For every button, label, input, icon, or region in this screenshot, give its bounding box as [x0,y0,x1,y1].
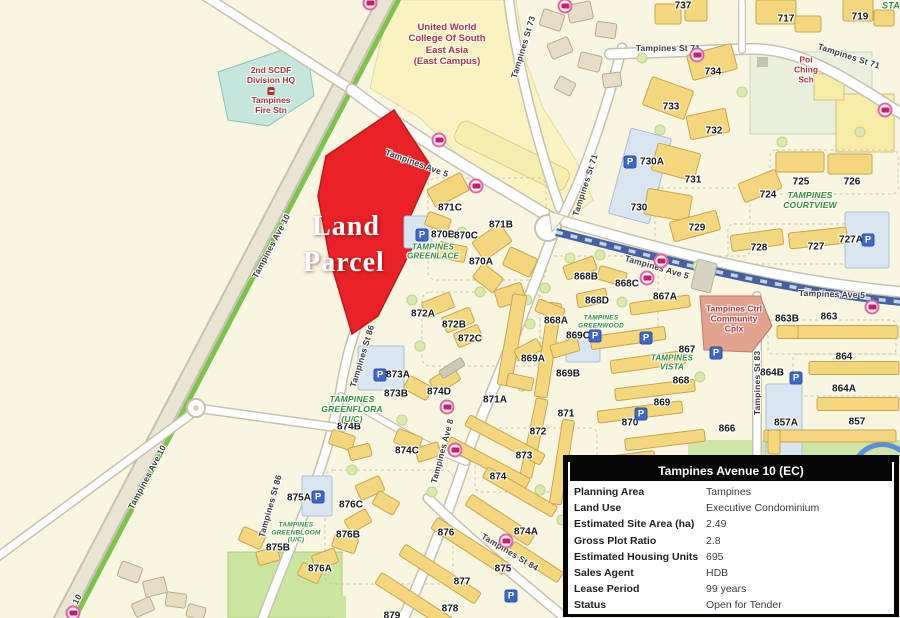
street-label-tampines-ave-5: Tampines Ave 5 [384,147,450,179]
estate-label-sta: STA [882,1,900,12]
bus-stop-icon [654,254,669,269]
block-label-868d: 868D [585,296,609,307]
block-label-730: 730 [631,203,648,214]
block-label-725: 725 [793,177,810,188]
landmark-label-tampines-ctrl: Tampines CtrlCommunityCplx [706,304,762,335]
block-label-866: 866 [719,424,736,435]
parking-icon: P [790,372,803,385]
info-table-rows: Planning AreaTampinesLand UseExecutive C… [568,481,894,614]
landmark-label-united-world: United WorldCollege Of SouthEast Asia(Ea… [408,22,485,68]
table-row: Estimated Housing Units695 [574,549,894,565]
block-label-871: 871 [558,409,575,420]
table-row: Lease Period99 years [574,581,894,597]
bus-stop-icon [499,534,514,549]
table-value: 2.49 [706,518,726,530]
block-label-724: 724 [760,190,777,201]
table-label: Land Use [574,502,706,514]
block-label-870a: 870A [469,257,493,268]
land-parcel-label-line1: Land [312,211,380,243]
block-label-868c: 868C [615,279,639,290]
block-label-857a: 857A [774,418,798,429]
block-label-876b: 876B [336,530,360,541]
estate-label-tampines-courtview: TAMPINESCOURTVIEW [783,190,837,210]
table-row: Gross Plot Ratio2.8 [574,533,894,549]
block-label-870b: 870B [431,230,455,241]
landmark-label-2nd-scdf: 2nd SCDFDivision HQ [247,65,295,85]
block-label-732: 732 [706,126,723,137]
table-value: Open for Tender [706,599,782,611]
fire-station-icon [268,87,275,95]
estate-label-tampines-greenbloom-u-c-: TAMPINESGREENBLOOM(U/C) [271,522,320,545]
block-label-877: 877 [454,577,471,588]
block-label-872c: 872C [458,334,482,345]
table-label: Estimated Housing Units [574,551,706,563]
block-label-869a: 869A [521,354,545,365]
block-label-869b: 869B [556,369,580,380]
street-label-tampines-st-71: Tampines St 71 [570,153,599,217]
block-label-875a: 875A [287,493,311,504]
street-label-tampines-st-71: Tampines St 71 [817,41,881,70]
bus-stop-icon [865,300,880,315]
block-label-878: 878 [442,604,459,615]
block-label-864a: 864A [832,384,856,395]
block-label-871a: 871A [483,395,507,406]
block-label-728: 728 [751,243,768,254]
parking-icon: P [589,330,602,343]
table-row: Sales AgentHDB [574,565,894,581]
table-row: Planning AreaTampines [574,484,894,500]
parking-icon: P [640,332,653,345]
block-label-874: 874 [490,472,507,483]
block-label-869c: 869C [566,331,590,342]
parking-icon: P [635,408,648,421]
bus-stop-icon [363,0,378,11]
block-label-874d: 874D [427,387,451,398]
table-label: Planning Area [574,486,706,498]
block-label-863b: 863B [775,314,799,325]
block-label-731: 731 [685,175,702,186]
estate-label-tampines-greenflora-u-c-: TAMPINESGREENFLORA(U/C) [321,394,383,424]
block-label-864: 864 [836,352,853,363]
block-label-868: 868 [673,376,690,387]
parking-icon: P [416,229,429,242]
block-label-727a: 727A [839,235,863,246]
block-label-868a: 868A [544,316,568,327]
bus-stop-icon [878,103,893,118]
street-label-tampines-st-83: Tampines St 83 [752,351,762,416]
landmark-label-poi: PoiChingSch [794,55,818,86]
table-row: Estimated Site Area (ha)2.49 [574,516,894,532]
block-label-727: 727 [808,242,825,253]
block-label-876a: 876A [308,564,332,575]
land-parcel-info-table: Tampines Avenue 10 (EC) Planning AreaTam… [564,456,898,616]
table-label: Gross Plot Ratio [574,535,706,547]
street-label-tampines-st-73: Tampines St 73 [509,15,537,80]
block-label-868b: 868B [574,272,598,283]
block-label-733: 733 [663,102,680,113]
bus-stop-icon [690,48,705,63]
block-label-874c: 874C [395,446,419,457]
table-value: Executive Condominium [706,502,819,514]
street-label-tampines-ave-10: Tampines Ave 10 [250,212,292,280]
estate-label-tampines-greenlace: TAMPINESGREENLACE [407,243,459,262]
bus-stop-icon [558,0,573,14]
table-value: 99 years [706,583,746,595]
bus-stop-icon [440,400,455,415]
landmark-label-tampines: TampinesFire Stn [251,95,290,115]
parking-icon: P [624,156,637,169]
street-label-tampines-st-86: Tampines St 86 [348,324,376,389]
street-label-10: 10 [70,592,83,605]
block-label-872: 872 [530,427,547,438]
bus-stop-icon [432,133,447,148]
table-row: StatusOpen for Tender [574,597,894,613]
bus-stop-icon [448,443,463,458]
block-label-870c: 870C [454,231,478,242]
block-label-874a: 874A [514,527,538,538]
parking-icon: P [312,491,325,504]
land-parcel-label-line2: Parcel [303,247,385,279]
table-label: Lease Period [574,583,706,595]
block-label-873a: 873A [386,370,410,381]
map-canvas[interactable]: Land Parcel 737717719734733732731730A730… [0,0,900,618]
table-value: Tampines [706,486,751,498]
bus-stop-icon [469,179,484,194]
block-label-729: 729 [689,223,706,234]
block-label-863: 863 [821,312,838,323]
block-label-737: 737 [675,1,692,12]
street-label-tampines-ave-10: Tampines Ave 10 [126,443,168,511]
block-label-717: 717 [778,14,795,25]
bus-stop-icon [640,271,655,286]
block-label-876: 876 [438,528,455,539]
block-label-873: 873 [516,451,533,462]
block-label-719: 719 [852,12,869,23]
block-label-871c: 871C [438,203,462,214]
street-label-tampines-ave-5: Tampines Ave 5 [799,288,866,300]
block-label-867a: 867A [653,292,677,303]
block-label-872a: 872A [411,309,435,320]
block-label-869: 869 [654,398,671,409]
table-value: 695 [706,551,724,563]
table-label: Status [574,599,706,611]
estate-label-tampines-greenwood: TAMPINESGREENWOOD [578,314,624,329]
block-label-876c: 876C [339,500,363,511]
info-table-title: Tampines Avenue 10 (EC) [570,462,892,481]
block-label-864b: 864B [760,368,784,379]
table-label: Sales Agent [574,567,706,579]
info-table-panel: Tampines Avenue 10 (EC) Planning AreaTam… [568,462,894,614]
block-label-879: 879 [384,611,401,618]
block-label-857: 857 [849,417,866,428]
block-label-872b: 872B [442,320,466,331]
parking-icon: P [710,347,723,360]
table-label: Estimated Site Area (ha) [574,518,706,530]
table-value: HDB [706,567,728,579]
parking-icon: P [374,369,387,382]
parking-icon: P [862,234,875,247]
block-label-726: 726 [844,177,861,188]
bus-stop-icon [66,606,81,618]
block-label-875: 875 [495,564,512,575]
block-label-734: 734 [705,67,722,78]
block-label-873b: 873B [384,389,408,400]
table-row: Land UseExecutive Condominium [574,500,894,516]
table-value: 2.8 [706,535,721,547]
estate-label-tampines-vista: TAMPINESVISTA [651,354,693,373]
block-label-871b: 871B [489,220,513,231]
block-label-730a: 730A [640,157,664,168]
parking-icon: P [505,590,518,603]
